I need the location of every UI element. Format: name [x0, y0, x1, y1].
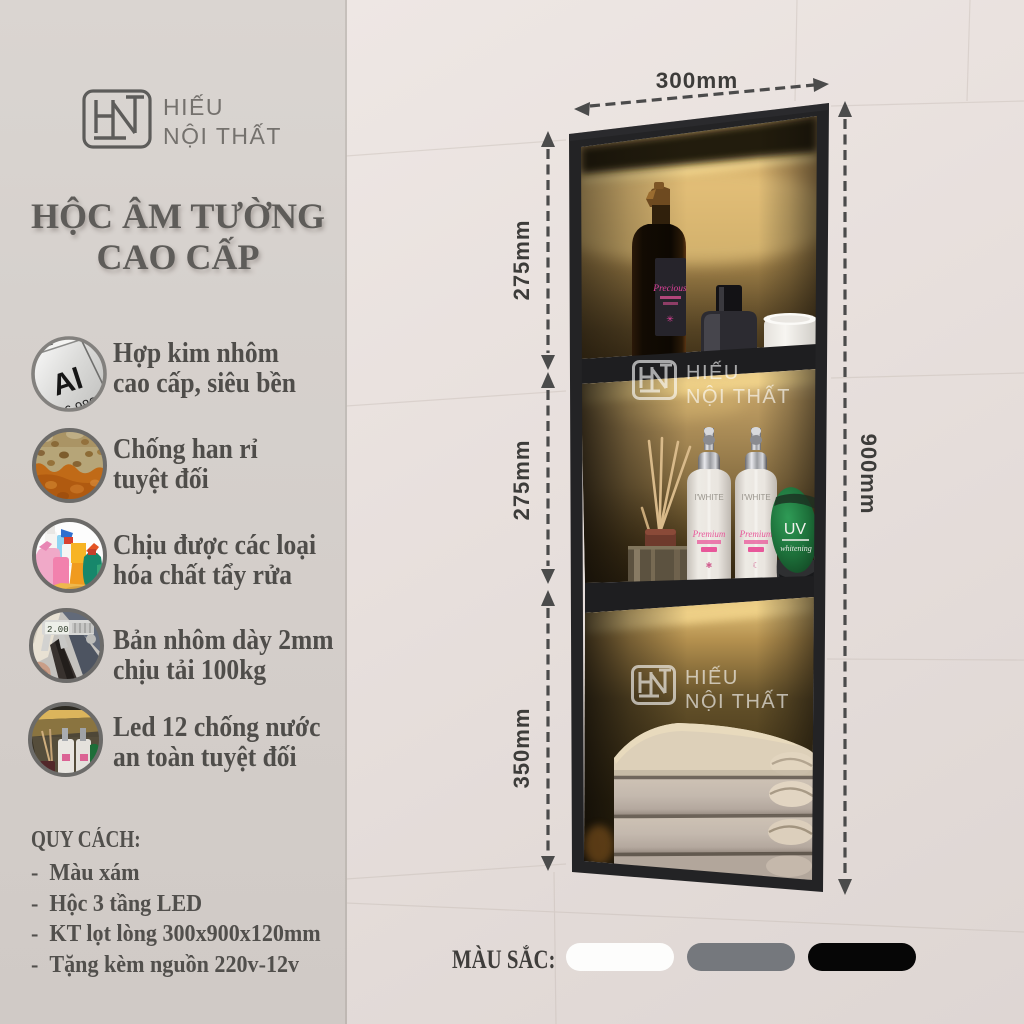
- svg-text:900mm: 900mm: [856, 434, 881, 515]
- svg-text:NỘI THẤT: NỘI THẤT: [685, 690, 790, 713]
- svg-text:300mm: 300mm: [656, 68, 739, 93]
- svg-text:Premium: Premium: [692, 529, 726, 539]
- svg-text:275mm: 275mm: [509, 220, 534, 301]
- svg-text:275mm: 275mm: [509, 440, 534, 521]
- svg-text:Premium: Premium: [739, 529, 773, 539]
- svg-text:UV: UV: [784, 521, 807, 538]
- svg-text:I'WHITE: I'WHITE: [741, 493, 771, 502]
- svg-text:Precious: Precious: [652, 284, 687, 294]
- svg-text:NỘI THẤT: NỘI THẤT: [686, 385, 791, 408]
- svg-text:☾: ☾: [752, 561, 759, 570]
- svg-text:HIẾU: HIẾU: [685, 666, 739, 689]
- svg-text:whitening: whitening: [780, 544, 812, 553]
- svg-text:✳: ✳: [666, 314, 674, 324]
- svg-text:HIẾU: HIẾU: [686, 361, 740, 384]
- svg-text:I'WHITE: I'WHITE: [694, 493, 724, 502]
- svg-text:✱: ✱: [706, 561, 713, 570]
- svg-text:350mm: 350mm: [509, 708, 534, 789]
